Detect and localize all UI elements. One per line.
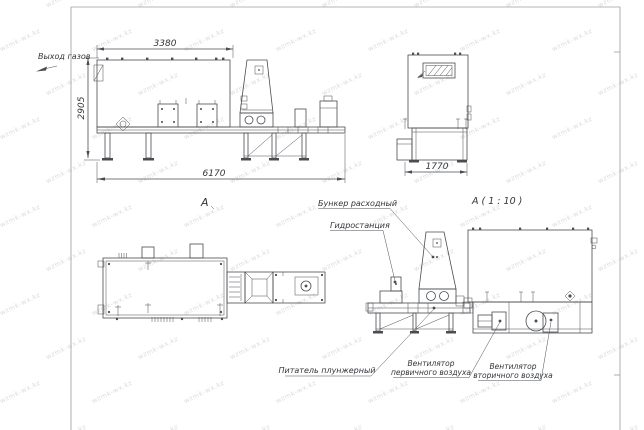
technical-drawing: 3380 2905 6170 [0, 0, 644, 430]
end-top-bolts [412, 53, 461, 55]
dim-6170-text: 6170 [203, 169, 226, 179]
label-secondary-fan-1: Вентилятор [490, 362, 537, 371]
end-view [397, 53, 471, 163]
label-hydraulic-station: Гидростанция [330, 221, 390, 230]
dim-1770-text: 1770 [426, 162, 449, 172]
detail-access-diamond [565, 291, 575, 301]
dimensions: 3380 2905 6170 [77, 39, 467, 183]
label-primary-fan-1: Вентилятор [408, 359, 455, 368]
dim-2905-text: 2905 [77, 96, 87, 119]
bottom-studs [485, 292, 535, 302]
label-primary-fan-2: первичного воздуха [391, 368, 471, 377]
label-gas-outlet: Выход газов [38, 52, 91, 61]
end-body [408, 55, 468, 128]
gas-outlet-stub [94, 65, 103, 81]
dim-3380: 3380 [97, 39, 233, 58]
drawing-canvas: wzmk-wx.kzwzmk-wx.kzwzmk-wx.kzwzmk-wx.kz… [0, 0, 644, 430]
furnace-hopper [240, 60, 273, 127]
deck-frame [373, 313, 456, 334]
opposite-side-view [366, 232, 472, 334]
label-plunger-feeder: Питатель плунжерный [279, 366, 376, 375]
plan-body [103, 258, 227, 318]
label-detail-a: А ( 1 : 10 ) [471, 196, 522, 207]
fan-frame [463, 302, 592, 333]
plan-view [98, 244, 325, 322]
feeder-units [295, 96, 337, 127]
access-door [116, 117, 130, 131]
primary-air-fan [478, 312, 506, 330]
plan-grate [227, 272, 245, 303]
detail-a-view [463, 228, 597, 333]
hydraulic-station [380, 277, 402, 303]
gas-vent-opening [417, 63, 455, 78]
end-base [397, 128, 467, 163]
annotations: Выход газов А А ( 1 : 10 ) Бункер расход… [36, 52, 522, 283]
support-frame [241, 133, 309, 161]
label-feed-hopper: Бункер расходный [318, 199, 397, 208]
burner-panels [158, 98, 217, 127]
callout-hydraulic-station: Гидростанция [330, 221, 396, 283]
plan-top-comb [119, 253, 127, 258]
dim-3380-text: 3380 [154, 39, 177, 49]
label-view-a: А [200, 196, 209, 209]
callout-secondary-fan: Вентилятор вторичного воздуха [473, 322, 553, 381]
platform [97, 127, 345, 133]
hopper-chimney [419, 232, 456, 303]
plan-feeder [273, 272, 325, 303]
dim-2905: 2905 [77, 58, 100, 160]
callout-primary-fan: Вентилятор первичного воздуха [391, 322, 500, 378]
plan-jack-marks [115, 261, 223, 316]
plan-hopper [245, 272, 273, 303]
gas-outlet-arrow [36, 66, 57, 72]
boiler-body [97, 60, 230, 127]
corner-studs [403, 119, 468, 129]
side-view [94, 58, 345, 161]
detail-body [468, 230, 592, 302]
detail-top-bolts [472, 228, 589, 230]
left-legs [102, 133, 154, 161]
dim-1770: 1770 [405, 162, 467, 176]
